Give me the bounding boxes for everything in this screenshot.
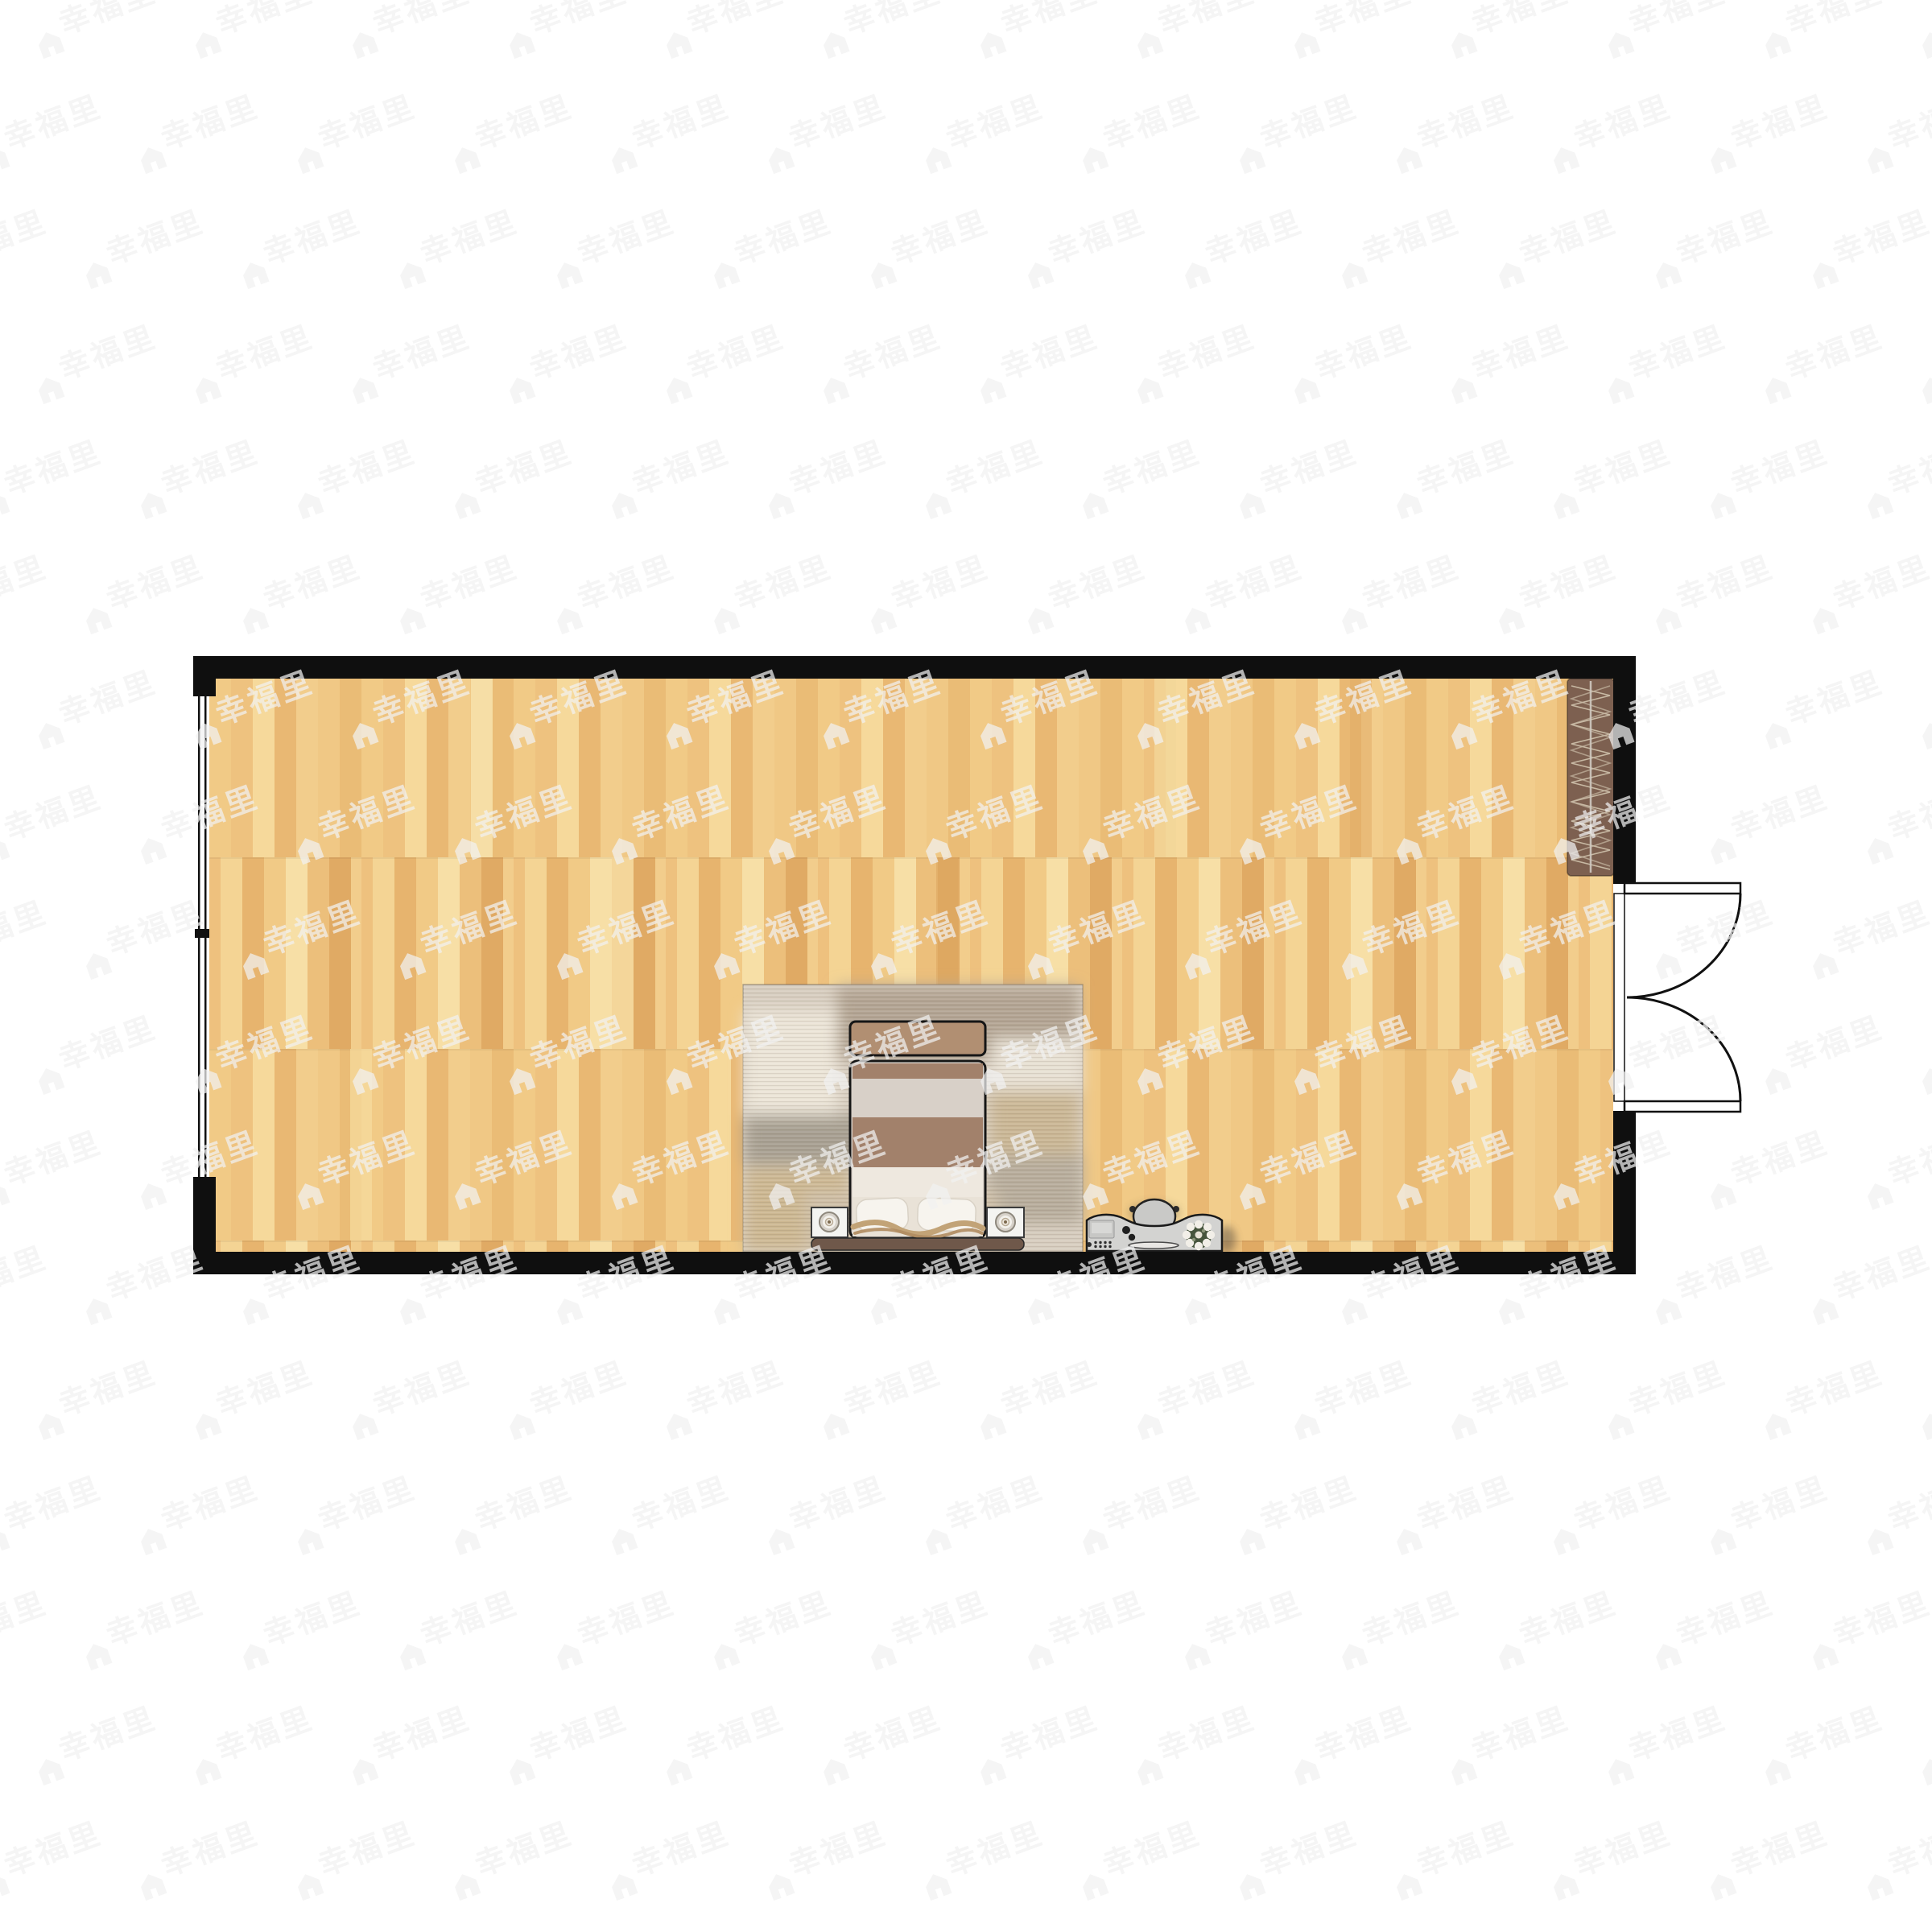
watermark [1174,204,1311,289]
watermark [1857,1125,1932,1210]
watermark [861,549,997,634]
watermark [1912,1700,1932,1785]
nightstand-right [987,1207,1024,1237]
watermark [1645,1585,1781,1670]
watermark [1441,1355,1577,1440]
watermark [1331,204,1468,289]
wall-right-upper [1613,656,1636,884]
watermark [499,0,635,59]
watermark [1229,89,1365,174]
watermark [76,894,212,980]
watermark [1857,434,1932,519]
watermark [1127,1355,1263,1440]
watermark [0,894,56,980]
watermark [704,204,840,289]
watermark [287,1470,423,1555]
watermark [76,1585,212,1670]
watermark [1127,1700,1263,1785]
watermark [915,89,1051,174]
watermark [547,549,683,634]
watermark [1645,1240,1781,1325]
laptop-icon [1089,1220,1114,1238]
watermark [342,1700,478,1785]
watermark [758,89,894,174]
watermark [1543,1470,1679,1555]
watermark [1755,664,1891,749]
watermark [0,0,8,59]
watermark [1229,1815,1365,1901]
watermark [1700,1470,1836,1555]
watermark [287,1815,423,1901]
watermark [0,779,110,865]
watermark [342,0,478,59]
watermark [1386,1470,1522,1555]
watermark [185,1700,321,1785]
watermark [1072,89,1208,174]
watermark [1284,1700,1420,1785]
watermark [1543,89,1679,174]
watermark [656,1700,792,1785]
watermark [1229,434,1365,519]
watermark [28,1355,164,1440]
watermark [1072,1815,1208,1901]
watermark [813,0,949,59]
watermark [233,1585,369,1670]
watermark [656,1355,792,1440]
watermark [1386,1815,1522,1901]
watermark [130,1815,266,1901]
watermark [1802,549,1932,634]
watermark [1174,549,1311,634]
watermark [1857,779,1932,865]
watermark [287,89,423,174]
watermark [1912,0,1932,59]
watermark [390,1585,526,1670]
watermark [1645,894,1781,980]
watermark [76,1240,212,1325]
watermark [1755,319,1891,404]
watermark [342,1355,478,1440]
watermark [0,1585,56,1670]
watermark [1857,1815,1932,1901]
watermark [185,1355,321,1440]
watermark [1174,1585,1311,1670]
watermark [1700,434,1836,519]
floor-plan-canvas: 幸福里 [0,0,1932,1932]
watermark [970,319,1106,404]
floor-plan-drawing: 幸福里 [0,0,1932,1932]
window-left [195,692,209,1177]
watermark [1857,89,1932,174]
watermark [1072,1470,1208,1555]
wall-corner-top-left [193,656,216,696]
watermark [499,319,635,404]
watermark [1802,1240,1932,1325]
watermark [758,1815,894,1901]
watermark [813,1355,949,1440]
nightstand-left [811,1207,848,1237]
watermark [0,1125,110,1210]
door-leaf-bottom [1624,1101,1740,1112]
watermark [1543,1815,1679,1901]
watermark [601,89,737,174]
watermark [861,1585,997,1670]
watermark [0,1700,8,1785]
door-leaf-top [1624,883,1740,894]
watermark [1598,1700,1734,1785]
watermark [915,434,1051,519]
watermark [1284,319,1420,404]
watermark [1331,549,1468,634]
watermark [1700,1815,1836,1901]
watermark [1018,204,1154,289]
watermark [1018,549,1154,634]
watermark [1284,0,1420,59]
watermark [1912,1009,1932,1095]
watermark [601,1815,737,1901]
watermark [0,319,8,404]
watermark [915,1815,1051,1901]
watermark [1284,1355,1420,1440]
watermark [1127,319,1263,404]
watermark [130,1470,266,1555]
watermark [758,434,894,519]
watermark [130,89,266,174]
watermark [444,1815,580,1901]
watermark [0,1815,110,1901]
watermark [28,0,164,59]
watermark [185,0,321,59]
watermark [1645,549,1781,634]
watermark [0,664,8,749]
watermark [0,204,56,289]
watermark [704,1585,840,1670]
watermark [0,434,110,519]
watermark [1127,0,1263,59]
watermark [970,1355,1106,1440]
watermark [813,319,949,404]
watermark [1441,0,1577,59]
watermark [970,0,1106,59]
watermark [1802,894,1932,980]
watermark [1072,434,1208,519]
watermark [601,434,737,519]
watermark [233,204,369,289]
watermark [1386,89,1522,174]
watermark [28,1700,164,1785]
lamp-icon [819,1212,839,1232]
watermark [1700,1125,1836,1210]
watermark [1700,779,1836,865]
watermark [185,319,321,404]
watermark [444,434,580,519]
watermark [1543,434,1679,519]
watermark [1441,1700,1577,1785]
watermark [1912,1355,1932,1440]
watermark [601,1470,737,1555]
watermark [444,1470,580,1555]
watermark [1386,434,1522,519]
watermark [287,434,423,519]
watermark [656,319,792,404]
watermark [1802,204,1932,289]
headboard-bar [811,1238,1024,1250]
watermark [390,549,526,634]
watermark [342,319,478,404]
watermark [0,1009,8,1095]
watermark [1912,664,1932,749]
watermark [1912,319,1932,404]
watermark [28,319,164,404]
watermark [547,204,683,289]
watermark [0,1355,8,1440]
watermark [1331,1585,1468,1670]
watermark [656,0,792,59]
watermark [1229,1470,1365,1555]
watermark [1598,1355,1734,1440]
watermark [28,1009,164,1095]
watermark [758,1470,894,1555]
watermark [444,89,580,174]
watermark [704,549,840,634]
watermark [76,204,212,289]
watermark [1488,549,1624,634]
watermark [1755,1009,1891,1095]
watermark [76,549,212,634]
watermark [1755,1355,1891,1440]
watermark [1598,0,1734,59]
watermark [1598,319,1734,404]
watermark [1441,319,1577,404]
watermark [861,204,997,289]
watermark [0,549,56,634]
watermark [0,1240,56,1325]
watermark [0,89,110,174]
watermark [970,1700,1106,1785]
watermark [499,1700,635,1785]
watermark [130,434,266,519]
watermark [1755,1700,1891,1785]
watermark [499,1355,635,1440]
watermark [0,1470,110,1555]
watermark [1802,1585,1932,1670]
watermark [1857,1470,1932,1555]
watermark [1645,204,1781,289]
lamp-icon [996,1212,1015,1232]
watermark [1488,1585,1624,1670]
watermark [547,1585,683,1670]
watermark [915,1470,1051,1555]
watermark [1700,89,1836,174]
watermark [390,204,526,289]
watermark [1488,204,1624,289]
watermark [813,1700,949,1785]
watermark [1018,1585,1154,1670]
watermark [1755,0,1891,59]
watermark [28,664,164,749]
watermark [233,549,369,634]
